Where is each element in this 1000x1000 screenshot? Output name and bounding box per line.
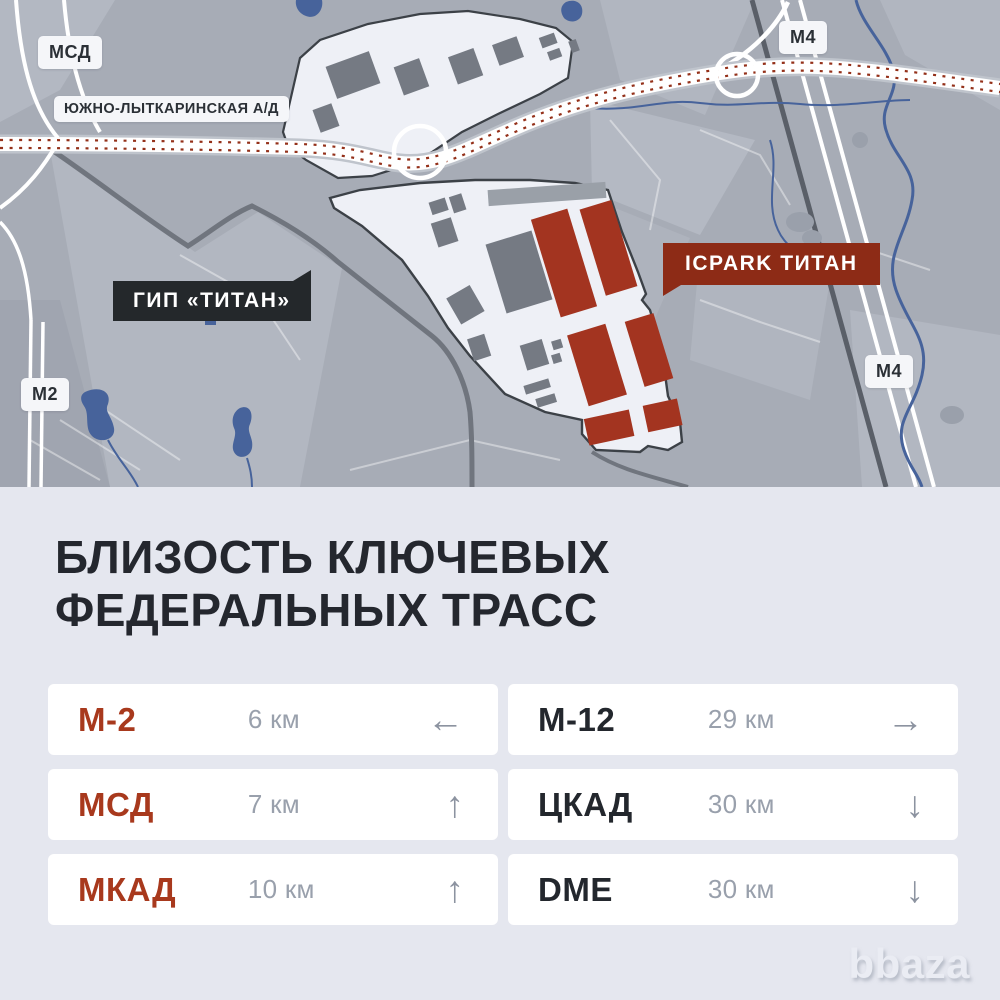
- direction-up-icon: ↑: [446, 786, 465, 823]
- direction-up-icon: ↑: [446, 871, 465, 908]
- road-label-m4-top: М4: [779, 21, 827, 54]
- section-title: БЛИЗОСТЬ КЛЮЧЕВЫХ ФЕДЕРАЛЬНЫХ ТРАСС: [55, 531, 610, 638]
- highway-name: ЦКАД: [538, 786, 708, 824]
- highway-name: М-12: [538, 701, 708, 739]
- distance-table: М-2 6 км ← М-12 29 км → МСД 7 км ↑ ЦКАД …: [48, 684, 958, 925]
- distance-value: 7 км: [248, 789, 300, 820]
- distances-panel: БЛИЗОСТЬ КЛЮЧЕВЫХ ФЕДЕРАЛЬНЫХ ТРАСС М-2 …: [0, 487, 1000, 1000]
- highway-name: DME: [538, 871, 708, 909]
- distance-value: 30 км: [708, 874, 775, 905]
- site-label-icpark-titan: ICPARK ТИТАН: [663, 243, 880, 285]
- bbaza-watermark: bbaza: [848, 940, 970, 988]
- distance-row-dme: DME 30 км ↓: [508, 854, 958, 925]
- location-map: МСД ЮЖНО-ЛЫТКАРИНСКАЯ А/Д М2 М4 М4 ГИП «…: [0, 0, 1000, 487]
- distance-row-msd: МСД 7 км ↑: [48, 769, 498, 840]
- distance-value: 29 км: [708, 704, 775, 735]
- distance-value: 6 км: [248, 704, 300, 735]
- direction-down-icon: ↓: [906, 786, 925, 823]
- direction-right-icon: →: [887, 701, 924, 738]
- road-label-m2: М2: [21, 378, 69, 411]
- distance-row-m12: М-12 29 км →: [508, 684, 958, 755]
- road-label-m4-bottom: М4: [865, 355, 913, 388]
- highway-name: МКАД: [78, 871, 248, 909]
- road-label-msd: МСД: [38, 36, 102, 69]
- distance-value: 10 км: [248, 874, 315, 905]
- direction-down-icon: ↓: [906, 871, 925, 908]
- direction-left-icon: ←: [427, 701, 464, 738]
- highway-name: МСД: [78, 786, 248, 824]
- road-label-yuzhno-lytkarinskaya: ЮЖНО-ЛЫТКАРИНСКАЯ А/Д: [54, 96, 289, 122]
- distance-row-mkad: МКАД 10 км ↑: [48, 854, 498, 925]
- infographic: МСД ЮЖНО-ЛЫТКАРИНСКАЯ А/Д М2 М4 М4 ГИП «…: [0, 0, 1000, 1000]
- site-label-gip-titan: ГИП «ТИТАН»: [113, 281, 311, 321]
- distance-row-m2: М-2 6 км ←: [48, 684, 498, 755]
- distance-value: 30 км: [708, 789, 775, 820]
- highway-name: М-2: [78, 701, 248, 739]
- distance-row-ckad: ЦКАД 30 км ↓: [508, 769, 958, 840]
